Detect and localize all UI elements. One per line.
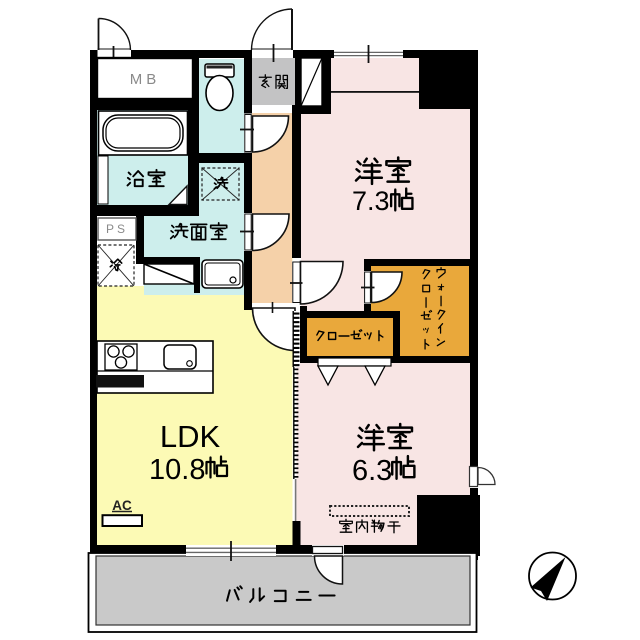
svg-text:6.3: 6.3: [352, 455, 392, 487]
svg-text:PS: PS: [106, 222, 128, 236]
svg-text:10.8: 10.8: [149, 454, 205, 486]
svg-text:7.3: 7.3: [352, 186, 390, 216]
svg-text:LDK: LDK: [160, 419, 221, 454]
svg-text:MB: MB: [130, 71, 161, 88]
svg-text:AC: AC: [112, 498, 132, 513]
